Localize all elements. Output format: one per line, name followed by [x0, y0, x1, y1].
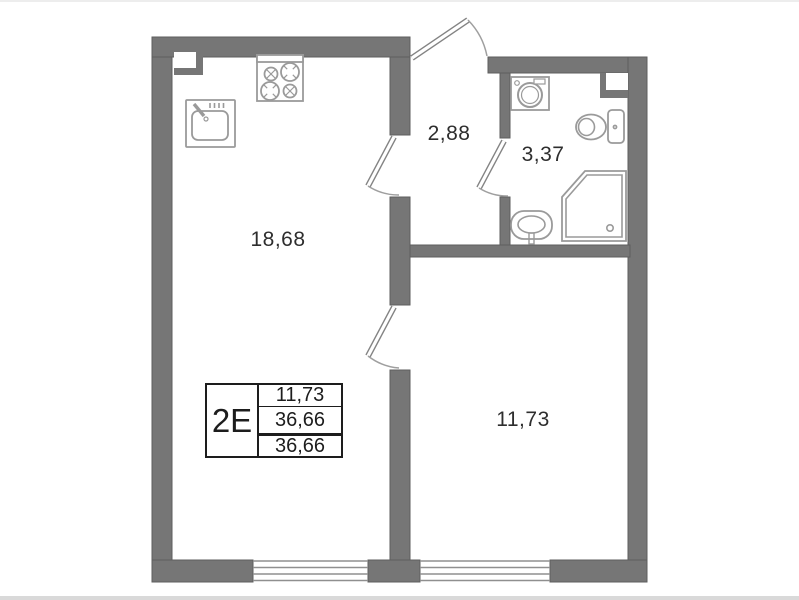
wall-bottom-middle-segment — [368, 560, 420, 582]
legend-area-column: 11,73 36,66 36,66 — [259, 385, 341, 456]
window-bedroom — [420, 561, 550, 581]
room-area-label-bedroom: 11,73 — [496, 408, 550, 432]
vent-shaft-bathroom-opening — [606, 73, 628, 90]
wall-interior-upper — [390, 57, 410, 135]
wall-bedroom-top — [410, 245, 630, 257]
wall-interior-lower — [390, 370, 410, 560]
wall-bathroom-left-upper — [500, 73, 510, 138]
wall-bathroom-left-lower — [500, 197, 510, 245]
wall-bottom-right-segment — [550, 560, 647, 582]
vent-shaft-kitchen-opening — [174, 52, 196, 68]
legend-table: 2E 11,73 36,66 36,66 — [205, 383, 343, 458]
legend-total-area: 36,66 — [259, 407, 341, 436]
wall-bathroom-top — [488, 57, 647, 73]
wall-bottom-left-segment — [152, 560, 253, 582]
entrance-door — [412, 20, 487, 58]
wall-right-outer — [628, 57, 647, 582]
stove-icon — [257, 55, 303, 101]
wall-left-outer — [152, 37, 172, 582]
floorplan-drawing — [0, 0, 799, 600]
window-living-room — [253, 561, 368, 581]
washing-machine-icon — [511, 77, 549, 110]
legend-overall-area: 36,66 — [259, 436, 341, 456]
legend-living-area: 11,73 — [259, 385, 341, 407]
room-area-label-hallway: 2,88 — [428, 122, 471, 146]
room-hallway — [410, 57, 500, 245]
wall-interior-middle — [390, 197, 410, 305]
room-area-label-kitchen-living: 18,68 — [250, 228, 305, 252]
floorplan-page: 18,68 2,88 3,37 11,73 2E 11,73 36,66 36,… — [0, 0, 799, 600]
kitchen-sink-icon — [186, 100, 235, 147]
room-area-label-bathroom: 3,37 — [522, 143, 565, 167]
legend-unit-cell: 2E — [207, 385, 259, 456]
